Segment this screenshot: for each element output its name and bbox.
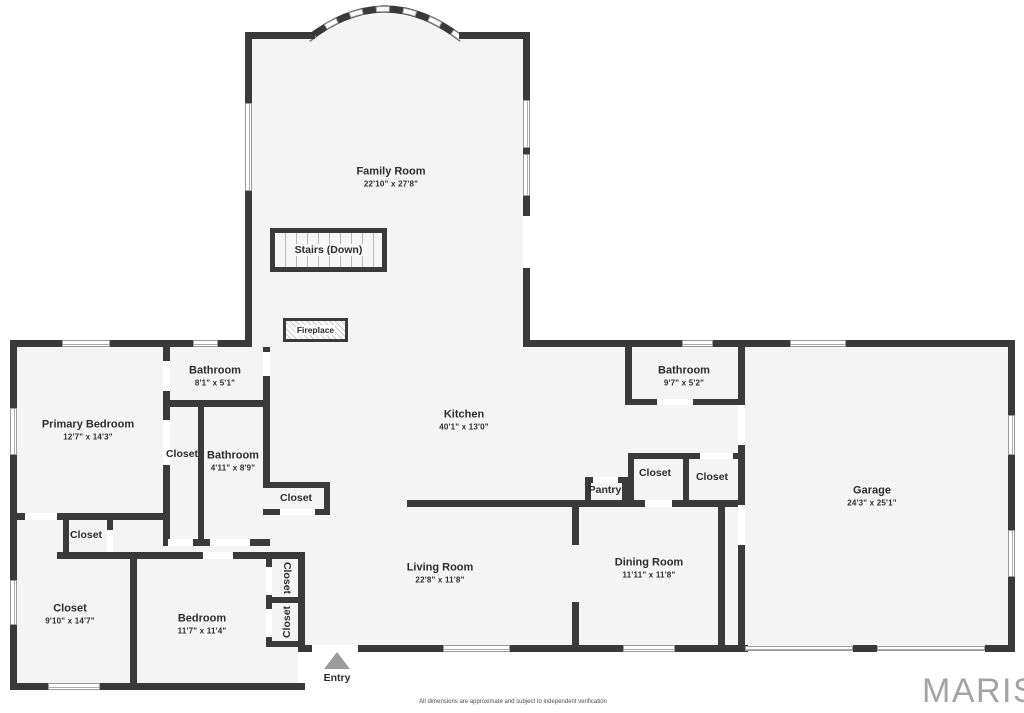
door-opening xyxy=(107,530,113,552)
wall-segment xyxy=(263,509,280,515)
door-opening xyxy=(738,505,745,545)
room-dims: 11'11" x 11'8" xyxy=(615,570,683,579)
room-dims: 24'3" x 25'1" xyxy=(847,498,897,507)
window xyxy=(443,645,510,652)
wall-segment xyxy=(10,513,25,520)
room-name: Garage xyxy=(847,485,897,498)
wall-segment xyxy=(163,400,270,407)
wall-segment xyxy=(163,407,170,420)
door-opening xyxy=(25,513,57,520)
wall-segment xyxy=(218,340,252,347)
room-name: Closet xyxy=(281,606,293,638)
room-dims: 9'10" x 14'7" xyxy=(45,616,95,625)
room-name: Closet xyxy=(281,562,293,594)
wall-segment xyxy=(250,539,270,546)
room-label-closet-large: Closet 9'10" x 14'7" xyxy=(45,603,95,626)
wall-segment xyxy=(738,545,745,645)
wall-segment xyxy=(459,32,530,39)
room-label-closet-v1: Closet xyxy=(281,562,293,594)
wall-segment xyxy=(163,347,170,361)
window xyxy=(62,340,110,347)
room-dims: 11'7" x 11'4" xyxy=(178,626,227,635)
wall-segment xyxy=(1008,577,1015,652)
room-label-closet-primary: Closet xyxy=(166,448,198,460)
wall-segment xyxy=(718,507,725,645)
door-opening xyxy=(203,552,233,559)
entry-marker xyxy=(324,652,350,669)
wall-segment xyxy=(63,520,69,552)
window xyxy=(245,103,252,191)
wall-segment xyxy=(1008,455,1015,530)
door-opening xyxy=(523,216,530,268)
wall-segment xyxy=(57,552,203,559)
window xyxy=(1008,415,1015,455)
wall-segment xyxy=(572,602,579,645)
wall-segment xyxy=(298,645,312,652)
room-label-kitchen: Kitchen 40'1" x 13'0" xyxy=(439,409,489,432)
window xyxy=(1008,530,1015,577)
room-name: Kitchen xyxy=(439,409,489,422)
room-dims: 4'11" x 8'9" xyxy=(207,463,259,472)
room-label-bedroom: Bedroom 11'7" x 11'4" xyxy=(178,613,227,636)
window xyxy=(523,100,530,148)
wall-segment xyxy=(407,500,645,507)
wall-segment xyxy=(245,32,315,39)
wall-segment xyxy=(315,509,330,515)
room-label-entry: Entry xyxy=(324,672,351,684)
room-label-closet-small: Closet xyxy=(70,529,102,541)
floor-plan: Stairs (Down) Fireplace Entry Family Roo… xyxy=(0,0,1024,713)
window xyxy=(48,683,100,690)
room-label-family-room: Family Room 22'10" x 27'8" xyxy=(356,166,425,189)
wall-segment xyxy=(523,196,530,216)
wall-segment xyxy=(10,347,17,408)
maris-logo: MARIS xyxy=(922,672,1024,711)
fireplace-box: Fireplace xyxy=(283,318,348,342)
wall-segment xyxy=(853,645,877,652)
wall-segment xyxy=(625,340,682,347)
room-label-primary-bedroom: Primary Bedroom 12'7" x 14'3" xyxy=(42,419,134,442)
fireplace-label: Fireplace xyxy=(296,325,335,335)
door-opening xyxy=(738,412,745,445)
room-dims: 12'7" x 14'3" xyxy=(42,432,134,441)
room-dims: 9'7" x 5'2" xyxy=(658,378,710,387)
door-opening xyxy=(593,477,618,483)
wall-segment xyxy=(745,340,790,347)
wall-segment xyxy=(625,347,632,399)
window xyxy=(523,154,530,196)
wall-segment xyxy=(628,453,683,459)
room-name: Closet xyxy=(166,448,198,460)
room-dims: 40'1" x 13'0" xyxy=(439,422,489,431)
room-name: Closet xyxy=(45,603,95,616)
door-opening xyxy=(700,453,733,459)
wall-segment xyxy=(672,500,745,507)
wall-segment xyxy=(628,459,634,500)
door-opening xyxy=(312,645,358,652)
wall-segment xyxy=(683,459,689,500)
wall-segment xyxy=(738,445,745,505)
stairs-box: Stairs (Down) xyxy=(270,228,387,272)
room-label-living-room: Living Room 22'8" x 11'8" xyxy=(407,562,474,585)
wall-segment xyxy=(57,513,163,520)
wall-segment xyxy=(358,645,443,652)
room-name: Bedroom xyxy=(178,613,227,626)
door-opening xyxy=(263,352,270,376)
wall-segment xyxy=(193,539,210,546)
room-label-closet-v2: Closet xyxy=(281,606,293,638)
wall-segment xyxy=(263,482,330,488)
room-label-bathroom-top: Bathroom 8'1" x 5'1" xyxy=(189,365,241,388)
window xyxy=(10,580,17,625)
room-label-garage: Garage 24'3" x 25'1" xyxy=(847,485,897,508)
wall-segment xyxy=(110,340,193,347)
door-opening xyxy=(645,500,672,507)
door-opening xyxy=(210,539,250,546)
wall-segment xyxy=(107,520,113,530)
room-name: Bathroom xyxy=(658,365,710,378)
door-opening xyxy=(163,361,170,391)
wall-segment xyxy=(298,552,305,652)
window xyxy=(623,645,675,652)
stairs-label: Stairs (Down) xyxy=(292,244,366,256)
wall-segment xyxy=(523,268,530,340)
window xyxy=(193,340,218,347)
wall-segment xyxy=(10,340,62,347)
wall-segment xyxy=(10,625,17,690)
window xyxy=(682,340,713,347)
door-opening xyxy=(266,609,272,637)
window xyxy=(745,646,853,651)
window xyxy=(790,340,846,347)
room-name: Closet xyxy=(70,529,102,541)
room-fill xyxy=(252,35,523,347)
room-name: Dining Room xyxy=(615,557,683,570)
room-name: Bathroom xyxy=(189,365,241,378)
room-name: Entry xyxy=(324,672,351,684)
wall-segment xyxy=(738,347,745,405)
room-dims: 8'1" x 5'1" xyxy=(189,378,241,387)
room-label-closet-hall: Closet xyxy=(280,492,312,504)
room-label-bathroom-right: Bathroom 9'7" x 5'2" xyxy=(658,365,710,388)
wall-segment xyxy=(846,340,1015,347)
room-name: Closet xyxy=(639,467,671,479)
wall-segment xyxy=(10,683,48,690)
room-name: Closet xyxy=(696,471,728,483)
room-name: Closet xyxy=(280,492,312,504)
window xyxy=(10,408,17,455)
disclaimer-text: All dimensions are approximate and subje… xyxy=(419,699,607,705)
wall-segment xyxy=(245,191,252,340)
wall-segment xyxy=(675,645,738,652)
room-label-dining-room: Dining Room 11'11" x 11'8" xyxy=(615,557,683,580)
door-opening xyxy=(266,567,272,595)
wall-segment xyxy=(263,376,270,482)
wall-segment xyxy=(130,559,137,690)
room-label-closet-r2: Closet xyxy=(696,471,728,483)
wall-segment xyxy=(266,559,272,567)
wall-segment xyxy=(985,645,1015,652)
room-dims: 22'10" x 27'8" xyxy=(356,179,425,188)
window xyxy=(877,646,985,651)
wall-segment xyxy=(198,407,204,539)
wall-segment xyxy=(523,340,625,347)
room-name: Pantry xyxy=(589,484,622,496)
room-name: Bathroom xyxy=(207,450,259,463)
wall-segment xyxy=(523,39,530,100)
wall-segment xyxy=(1008,347,1015,415)
wall-segment xyxy=(510,645,623,652)
door-opening xyxy=(280,509,315,515)
room-name: Primary Bedroom xyxy=(42,419,134,432)
wall-segment xyxy=(625,399,657,405)
wall-segment xyxy=(163,465,170,546)
door-opening xyxy=(168,539,193,546)
room-label-closet-r1: Closet xyxy=(639,467,671,479)
wall-segment xyxy=(713,340,745,347)
wall-segment xyxy=(233,552,305,559)
room-label-pantry: Pantry xyxy=(589,484,622,496)
room-dims: 22'8" x 11'8" xyxy=(407,575,474,584)
wall-segment xyxy=(245,39,252,103)
door-opening xyxy=(657,399,693,405)
room-label-bathroom-mid: Bathroom 4'11" x 8'9" xyxy=(207,450,259,473)
room-name: Family Room xyxy=(356,166,425,179)
wall-segment xyxy=(572,507,579,545)
room-name: Living Room xyxy=(407,562,474,575)
